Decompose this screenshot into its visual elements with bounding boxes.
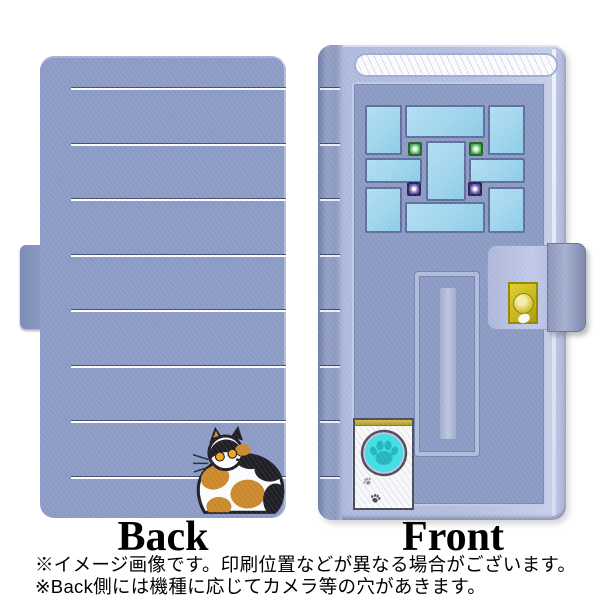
spine-stripe bbox=[320, 87, 340, 90]
window-pane bbox=[488, 105, 525, 155]
doorbell-plate-trim bbox=[355, 420, 412, 426]
spine-stripe bbox=[320, 198, 340, 201]
doorbell-plate bbox=[353, 418, 414, 510]
disclaimer-notes: ※イメージ画像です。印刷位置などが異なる場合がございます。 ※Back側には機種… bbox=[35, 554, 595, 598]
back-stripe bbox=[71, 309, 286, 312]
back-stripe bbox=[71, 87, 286, 90]
spine-stripe bbox=[320, 476, 340, 479]
window-pane bbox=[488, 187, 525, 233]
back-view-label: Back bbox=[117, 516, 208, 558]
green-light-icon bbox=[469, 142, 483, 156]
spine-stripe bbox=[320, 309, 340, 312]
mail-slot bbox=[415, 272, 479, 456]
case-front-panel bbox=[318, 45, 566, 520]
front-view-label: Front bbox=[402, 516, 504, 558]
back-stripe bbox=[71, 198, 286, 201]
door-transom-window bbox=[354, 53, 558, 77]
product-image-canvas: Back Front ※イメージ画像です。印刷位置などが異なる場合がございます。… bbox=[0, 0, 600, 600]
window-pane bbox=[365, 158, 422, 183]
back-stripe bbox=[71, 420, 286, 423]
doorknob bbox=[513, 293, 534, 314]
disclaimer-line-2: ※Back側には機種に応じてカメラ等の穴があきます。 bbox=[35, 576, 595, 598]
window-pane bbox=[405, 105, 485, 138]
paw-print-icon bbox=[368, 491, 384, 507]
calico-cat-illustration bbox=[193, 424, 286, 518]
spine-stripe bbox=[320, 143, 340, 146]
disclaimer-line-1: ※イメージ画像です。印刷位置などが異なる場合がございます。 bbox=[35, 554, 595, 576]
clasp-strap bbox=[547, 243, 586, 332]
case-spine bbox=[318, 45, 342, 520]
window-pane bbox=[426, 141, 466, 201]
purple-light-icon bbox=[407, 182, 421, 196]
spine-stripe bbox=[320, 254, 340, 257]
window-pane bbox=[365, 187, 402, 233]
green-light-icon bbox=[408, 142, 422, 156]
back-stripe bbox=[71, 254, 286, 257]
purple-light-icon bbox=[468, 182, 482, 196]
back-stripe bbox=[71, 143, 286, 146]
spine-stripe bbox=[320, 420, 340, 423]
paw-doorbell-button bbox=[360, 429, 408, 477]
window-pane bbox=[469, 158, 525, 183]
doorknob-plate bbox=[508, 282, 538, 324]
spine-stripe bbox=[320, 365, 340, 368]
door-window bbox=[363, 103, 527, 235]
back-stripe bbox=[71, 365, 286, 368]
mail-slot-opening bbox=[440, 288, 456, 439]
window-pane bbox=[365, 105, 402, 155]
case-back-panel bbox=[40, 56, 286, 518]
doorknob-highlight bbox=[517, 312, 531, 325]
window-pane bbox=[405, 202, 485, 233]
